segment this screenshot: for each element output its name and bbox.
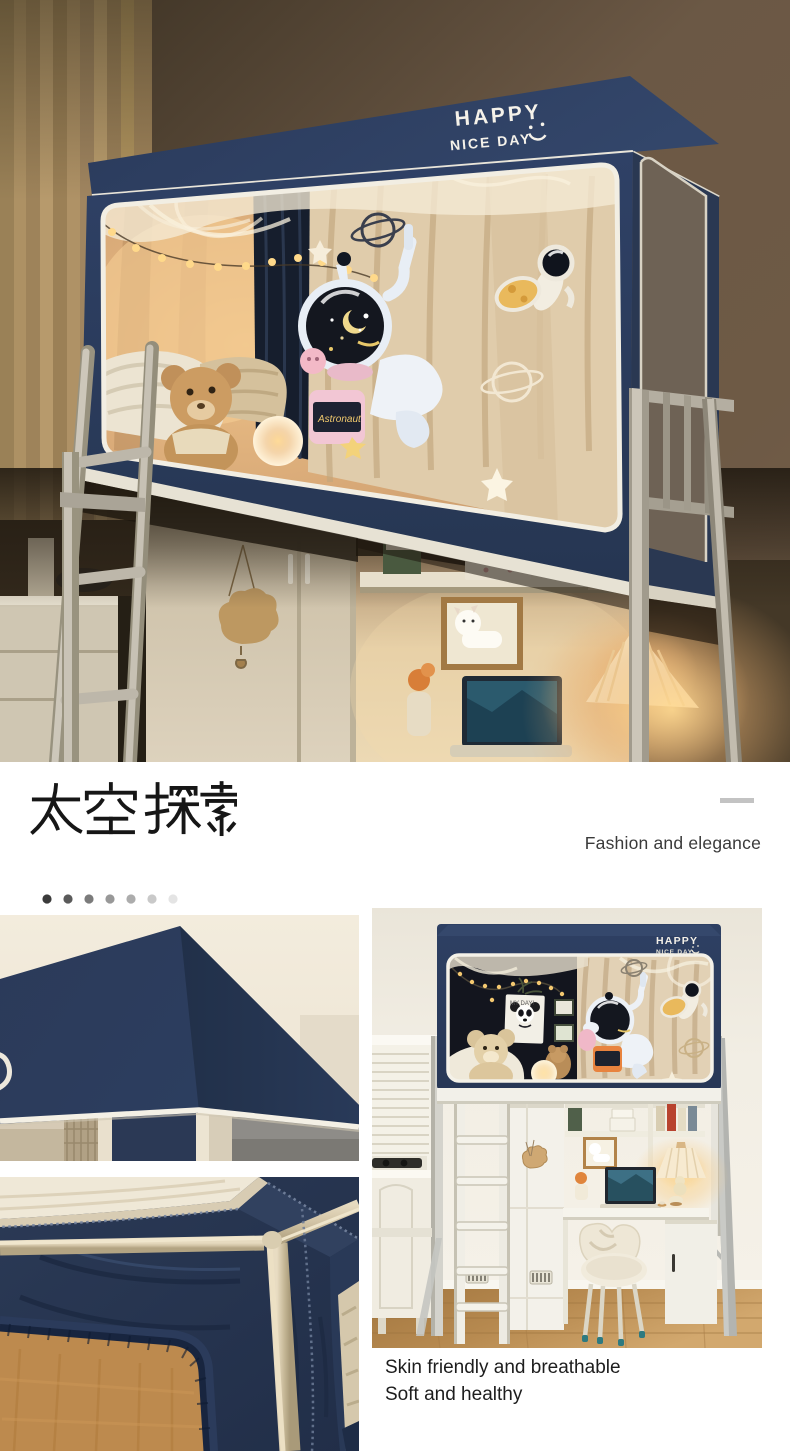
svg-text:NICE DAY: NICE DAY xyxy=(656,949,693,956)
svg-text:HAPPY: HAPPY xyxy=(656,935,698,947)
svg-text:MY DAY!: MY DAY! xyxy=(510,1001,534,1007)
svg-text:Astronaut: Astronaut xyxy=(317,414,362,425)
